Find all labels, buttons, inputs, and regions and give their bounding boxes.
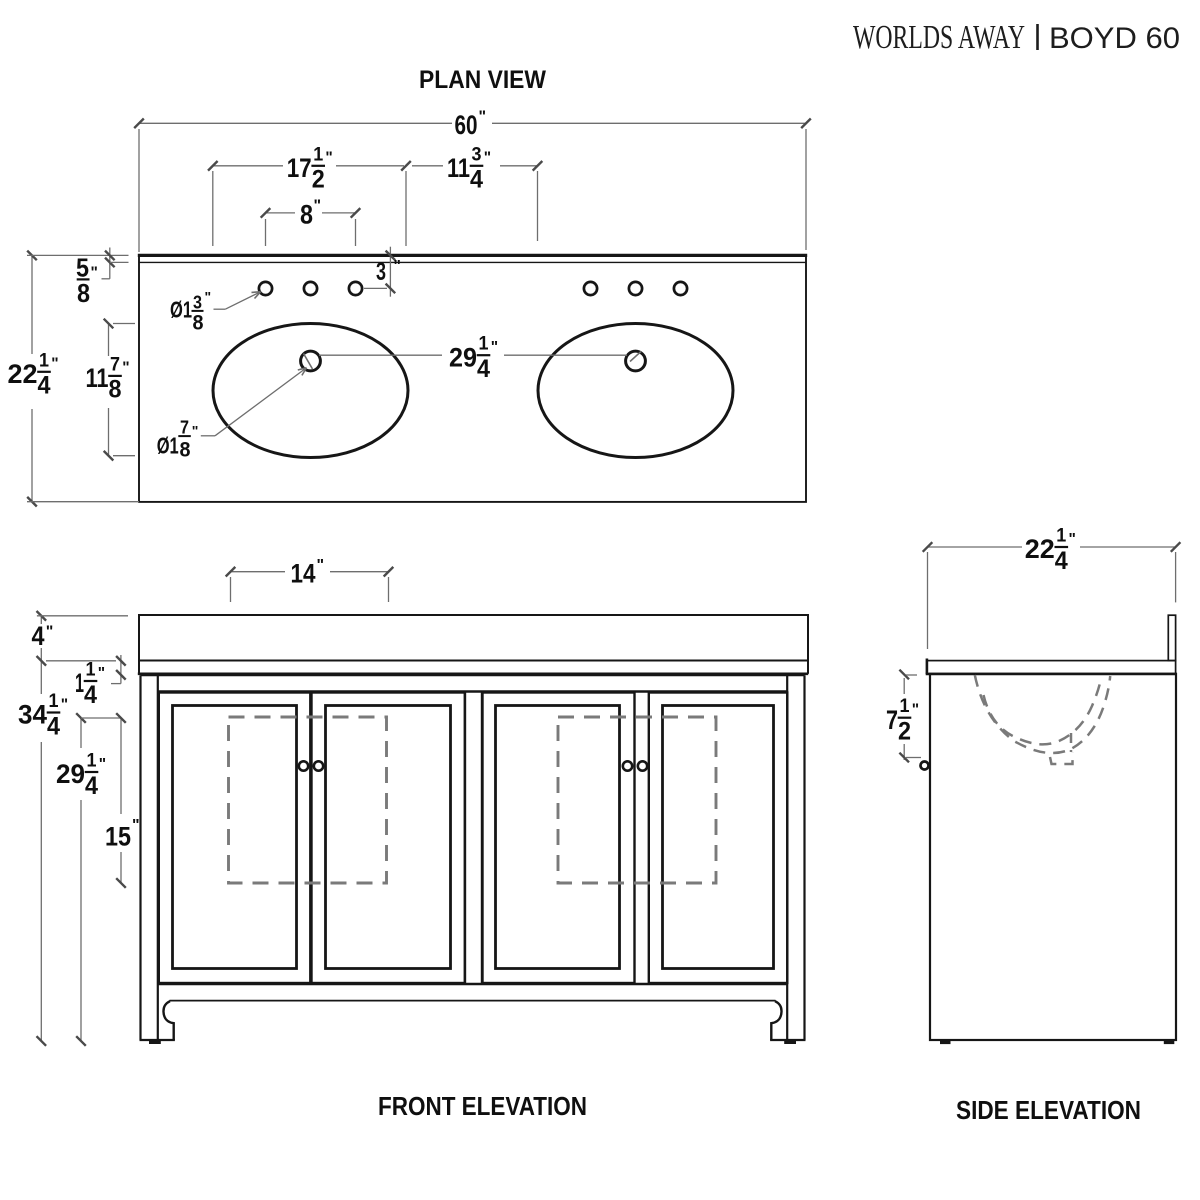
- svg-text:": ": [99, 756, 106, 773]
- svg-text:": ": [51, 356, 58, 373]
- svg-text:PLAN VIEW: PLAN VIEW: [419, 66, 546, 94]
- svg-text:11: 11: [447, 153, 470, 183]
- svg-text:4: 4: [1055, 547, 1068, 575]
- svg-text:22: 22: [8, 359, 38, 389]
- svg-text:4: 4: [47, 712, 60, 740]
- svg-text:1: 1: [479, 334, 489, 355]
- svg-text:22: 22: [1025, 534, 1055, 564]
- svg-text:4: 4: [38, 372, 51, 400]
- svg-text:4: 4: [32, 621, 45, 651]
- svg-text:": ": [484, 150, 491, 167]
- svg-text:": ": [46, 624, 54, 641]
- svg-text:29: 29: [56, 759, 85, 789]
- svg-text:1: 1: [86, 660, 96, 681]
- svg-text:7: 7: [886, 705, 898, 735]
- svg-text:4: 4: [477, 355, 490, 383]
- svg-text:34: 34: [18, 700, 47, 730]
- svg-text:8: 8: [109, 376, 122, 404]
- svg-text:": ": [394, 258, 401, 275]
- svg-text:FRONT ELEVATION: FRONT ELEVATION: [378, 1091, 587, 1121]
- svg-text:2: 2: [898, 718, 911, 746]
- svg-text:SIDE ELEVATION: SIDE ELEVATION: [956, 1095, 1141, 1125]
- svg-text:Ø1: Ø1: [157, 432, 179, 458]
- svg-text:": ": [912, 702, 919, 719]
- svg-text:1: 1: [75, 668, 84, 698]
- svg-text:15: 15: [105, 822, 131, 852]
- svg-text:14: 14: [291, 558, 316, 588]
- svg-text:8: 8: [193, 312, 204, 335]
- svg-text:8: 8: [77, 278, 90, 308]
- svg-text:4: 4: [84, 681, 97, 709]
- svg-text:1: 1: [39, 350, 49, 371]
- svg-text:3: 3: [472, 144, 482, 165]
- svg-text:": ": [192, 423, 199, 439]
- svg-text:": ": [91, 265, 98, 282]
- svg-text:": ": [98, 665, 105, 682]
- svg-text:": ": [122, 360, 129, 377]
- svg-text:2: 2: [312, 166, 325, 194]
- svg-text:1: 1: [313, 144, 323, 165]
- svg-text:1: 1: [87, 751, 97, 772]
- svg-text:Ø1: Ø1: [170, 297, 192, 323]
- svg-text:11: 11: [86, 363, 109, 393]
- svg-text:": ": [1069, 531, 1076, 548]
- svg-text:3: 3: [193, 293, 202, 313]
- svg-text:7: 7: [180, 418, 189, 438]
- svg-text:": ": [317, 557, 325, 574]
- svg-text:": ": [314, 198, 322, 215]
- svg-text:1: 1: [1056, 526, 1066, 547]
- svg-text:": ": [132, 817, 140, 834]
- svg-text:": ": [491, 339, 498, 356]
- svg-text:60: 60: [455, 110, 478, 140]
- svg-text:7: 7: [110, 354, 120, 375]
- svg-text:3: 3: [376, 258, 386, 286]
- svg-text:8: 8: [300, 199, 313, 229]
- svg-text:1: 1: [49, 691, 59, 712]
- svg-text:4: 4: [85, 772, 98, 800]
- svg-text:8: 8: [180, 439, 191, 462]
- svg-text:WORLDS AWAY: WORLDS AWAY: [853, 19, 1025, 56]
- svg-text:1: 1: [900, 696, 910, 717]
- svg-text:": ": [205, 289, 212, 305]
- svg-text:4: 4: [470, 166, 483, 194]
- svg-text:29: 29: [449, 342, 477, 372]
- svg-text:": ": [479, 109, 487, 126]
- svg-text:17: 17: [287, 153, 312, 183]
- svg-text:BOYD 60: BOYD 60: [1049, 22, 1180, 55]
- svg-text:": ": [61, 696, 68, 713]
- svg-text:": ": [325, 150, 332, 167]
